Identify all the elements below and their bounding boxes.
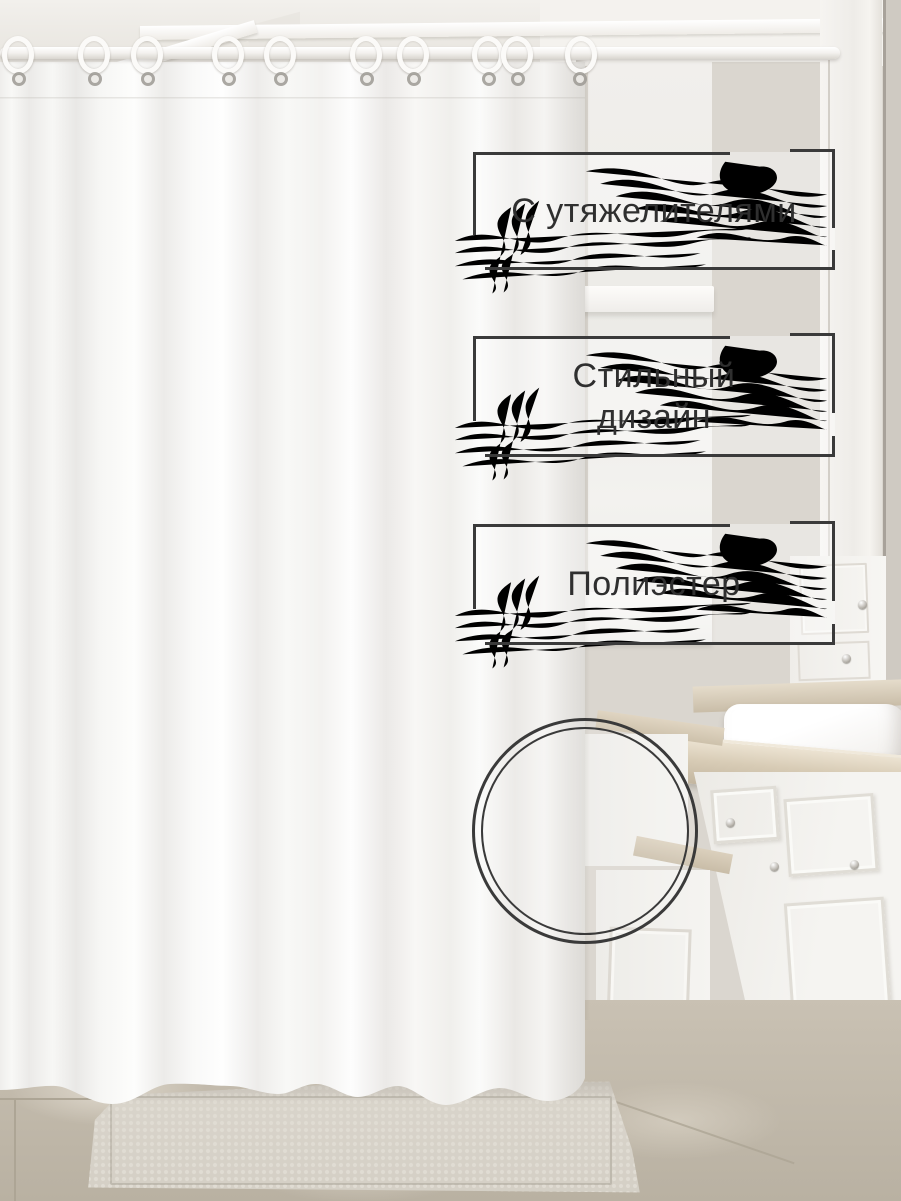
- curtain-grommet: [407, 72, 421, 86]
- feature-badge-design: Стильный дизайн: [473, 336, 835, 457]
- wall-edge: [886, 0, 901, 700]
- curtain-hook: [565, 36, 597, 74]
- curtain-grommet: [482, 72, 496, 86]
- cabinet-knob: [842, 654, 851, 663]
- cabinet-door-panel: [783, 793, 878, 877]
- product-image: С утяжелителями Стильный дизайн Полиэсте…: [0, 0, 901, 1201]
- curtain-hook: [264, 36, 296, 74]
- curtain-hook: [350, 36, 382, 74]
- fabric-detail-circle-inner: [481, 727, 689, 935]
- curtain-hook: [472, 36, 504, 74]
- curtain-grommet: [141, 72, 155, 86]
- curtain-hook: [131, 36, 163, 74]
- cabinet-knob: [850, 860, 859, 869]
- cabinet-drawer-panel: [797, 641, 870, 681]
- badge-label: Полиэстер: [473, 524, 835, 645]
- cabinet-knob: [726, 818, 735, 827]
- feature-badge-material: Полиэстер: [473, 524, 835, 645]
- feature-badge-weights: С утяжелителями: [473, 152, 835, 270]
- curtain-grommet: [222, 72, 236, 86]
- curtain-grommet: [511, 72, 525, 86]
- badge-text: Стильный: [573, 356, 736, 397]
- badge-text: Полиэстер: [567, 564, 740, 605]
- curtain-grommet: [12, 72, 26, 86]
- cabinet-knob: [858, 600, 867, 609]
- curtain-hook: [2, 36, 34, 74]
- curtain-hook: [397, 36, 429, 74]
- badge-text: С утяжелителями: [511, 191, 796, 232]
- cabinet-knob: [770, 862, 779, 871]
- curtain-grommet: [573, 72, 587, 86]
- cabinet-drawer-panel: [710, 786, 780, 844]
- curtain-grommet: [274, 72, 288, 86]
- curtain-hook: [78, 36, 110, 74]
- curtain-hook: [212, 36, 244, 74]
- badge-text: дизайн: [597, 397, 711, 438]
- fabric-detail-circle: [472, 718, 698, 944]
- curtain-hook: [501, 36, 533, 74]
- badge-label: С утяжелителями: [473, 152, 835, 270]
- curtain-grommet: [88, 72, 102, 86]
- curtain-grommet: [360, 72, 374, 86]
- badge-label: Стильный дизайн: [473, 336, 835, 457]
